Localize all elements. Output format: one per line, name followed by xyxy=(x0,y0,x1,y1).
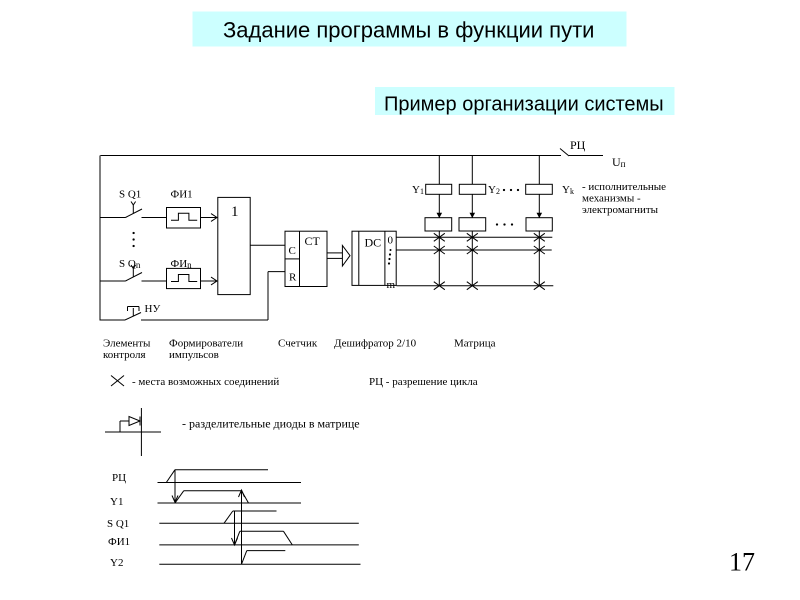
svg-text:S Qn: S Qn xyxy=(119,258,141,270)
svg-text:S Q1: S Q1 xyxy=(119,189,141,201)
svg-text:C: C xyxy=(289,245,296,257)
svg-text:Матрица: Матрица xyxy=(454,337,496,349)
svg-text:Пример организации системы: Пример организации системы xyxy=(384,93,664,115)
svg-text:РЦ - разрешение цикла: РЦ - разрешение цикла xyxy=(369,376,478,388)
svg-text:DC: DC xyxy=(365,236,382,250)
svg-text:электромагниты: электромагниты xyxy=(582,204,659,216)
svg-text:Uп: Uп xyxy=(612,155,626,169)
svg-text:Задание программы в функции пу: Задание программы в функции пути xyxy=(223,17,594,42)
svg-text:0: 0 xyxy=(388,235,394,247)
svg-text:ФИ1: ФИ1 xyxy=(108,536,130,548)
svg-text:1: 1 xyxy=(231,204,239,220)
svg-text:S Q1: S Q1 xyxy=(107,518,129,530)
svg-text:R: R xyxy=(289,272,297,284)
svg-text:Yk: Yk xyxy=(562,184,574,196)
svg-text:РЦ: РЦ xyxy=(570,138,586,152)
svg-text:Y2: Y2 xyxy=(110,557,123,569)
svg-text:Y1: Y1 xyxy=(412,184,424,196)
svg-text:ФИn: ФИn xyxy=(171,258,193,270)
svg-text:m: m xyxy=(387,279,396,291)
svg-text:Счетчик: Счетчик xyxy=(278,337,318,349)
svg-text:- исполнительные: - исполнительные xyxy=(582,181,666,193)
svg-text:Формирователи: Формирователи xyxy=(169,337,243,349)
svg-text:механизмы -: механизмы - xyxy=(582,193,641,205)
svg-text:17: 17 xyxy=(729,548,755,577)
svg-text:Дешифратор 2/10: Дешифратор 2/10 xyxy=(334,337,417,349)
svg-text:Y2: Y2 xyxy=(488,184,500,196)
svg-text:контроля: контроля xyxy=(103,349,146,361)
svg-text:ФИ1: ФИ1 xyxy=(171,189,193,201)
svg-text:импульсов: импульсов xyxy=(169,349,219,361)
svg-text:СТ: СТ xyxy=(305,234,321,248)
svg-text:РЦ: РЦ xyxy=(112,472,126,484)
svg-text:Элементы: Элементы xyxy=(103,337,151,349)
svg-text:НУ: НУ xyxy=(145,303,161,315)
svg-text:- разделительные диоды в матри: - разделительные диоды в матрице xyxy=(182,417,360,431)
svg-text:Y1: Y1 xyxy=(110,496,123,508)
svg-text:- места возможных соединений: - места возможных соединений xyxy=(132,376,279,388)
